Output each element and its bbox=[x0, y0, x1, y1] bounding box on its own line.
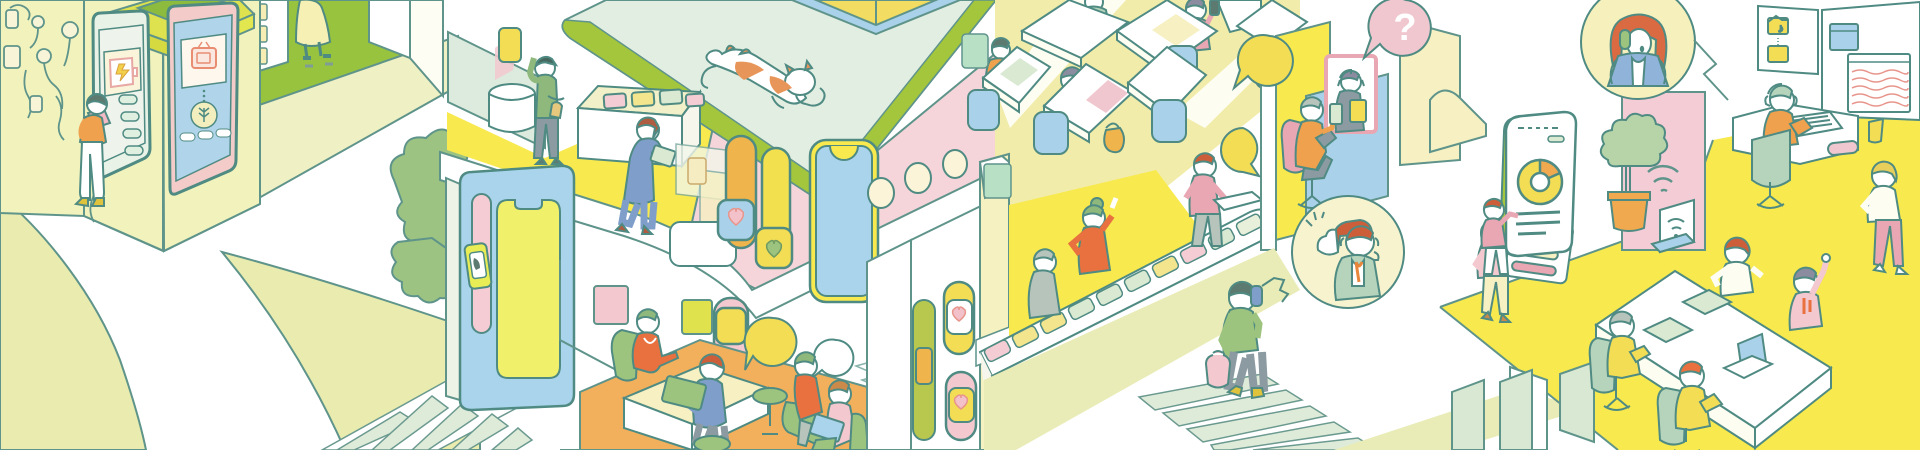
svg-text:♪: ♪ bbox=[1778, 23, 1784, 35]
svg-text:?: ? bbox=[1393, 7, 1416, 49]
